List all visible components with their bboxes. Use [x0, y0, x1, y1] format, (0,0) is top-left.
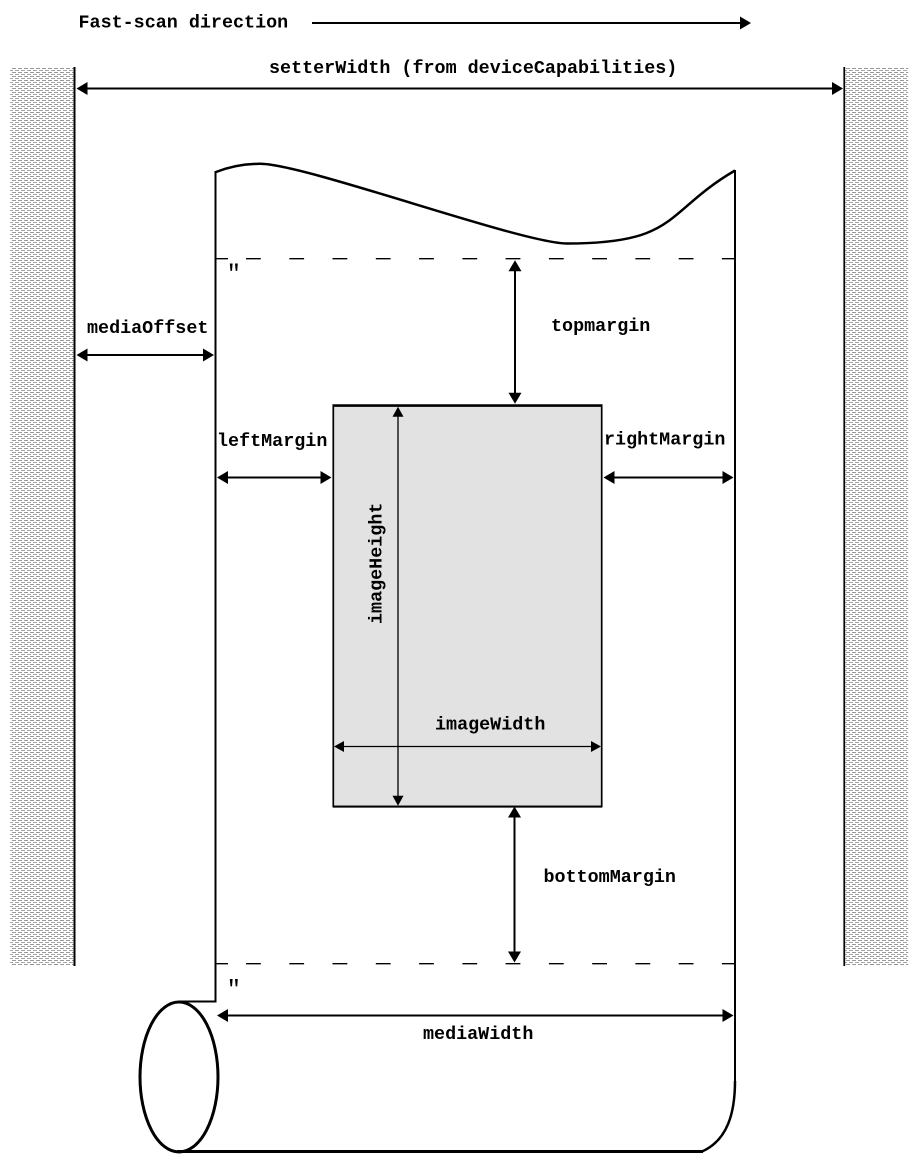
svg-text:Fast-scan direction: Fast-scan direction: [79, 13, 289, 34]
svg-text:mediaOffset: mediaOffset: [87, 318, 208, 339]
svg-text:rightMargin: rightMargin: [604, 430, 725, 451]
svg-text:imageWidth: imageWidth: [435, 715, 545, 736]
svg-text:imageHeight: imageHeight: [367, 503, 388, 624]
svg-text:bottomMargin: bottomMargin: [544, 867, 676, 888]
svg-text:leftMargin: leftMargin: [217, 431, 327, 452]
svg-text:topmargin: topmargin: [551, 316, 650, 337]
svg-text:mediaWidth: mediaWidth: [423, 1024, 533, 1045]
svg-text:setterWidth (from deviceCapabi: setterWidth (from deviceCapabilities): [269, 58, 677, 79]
